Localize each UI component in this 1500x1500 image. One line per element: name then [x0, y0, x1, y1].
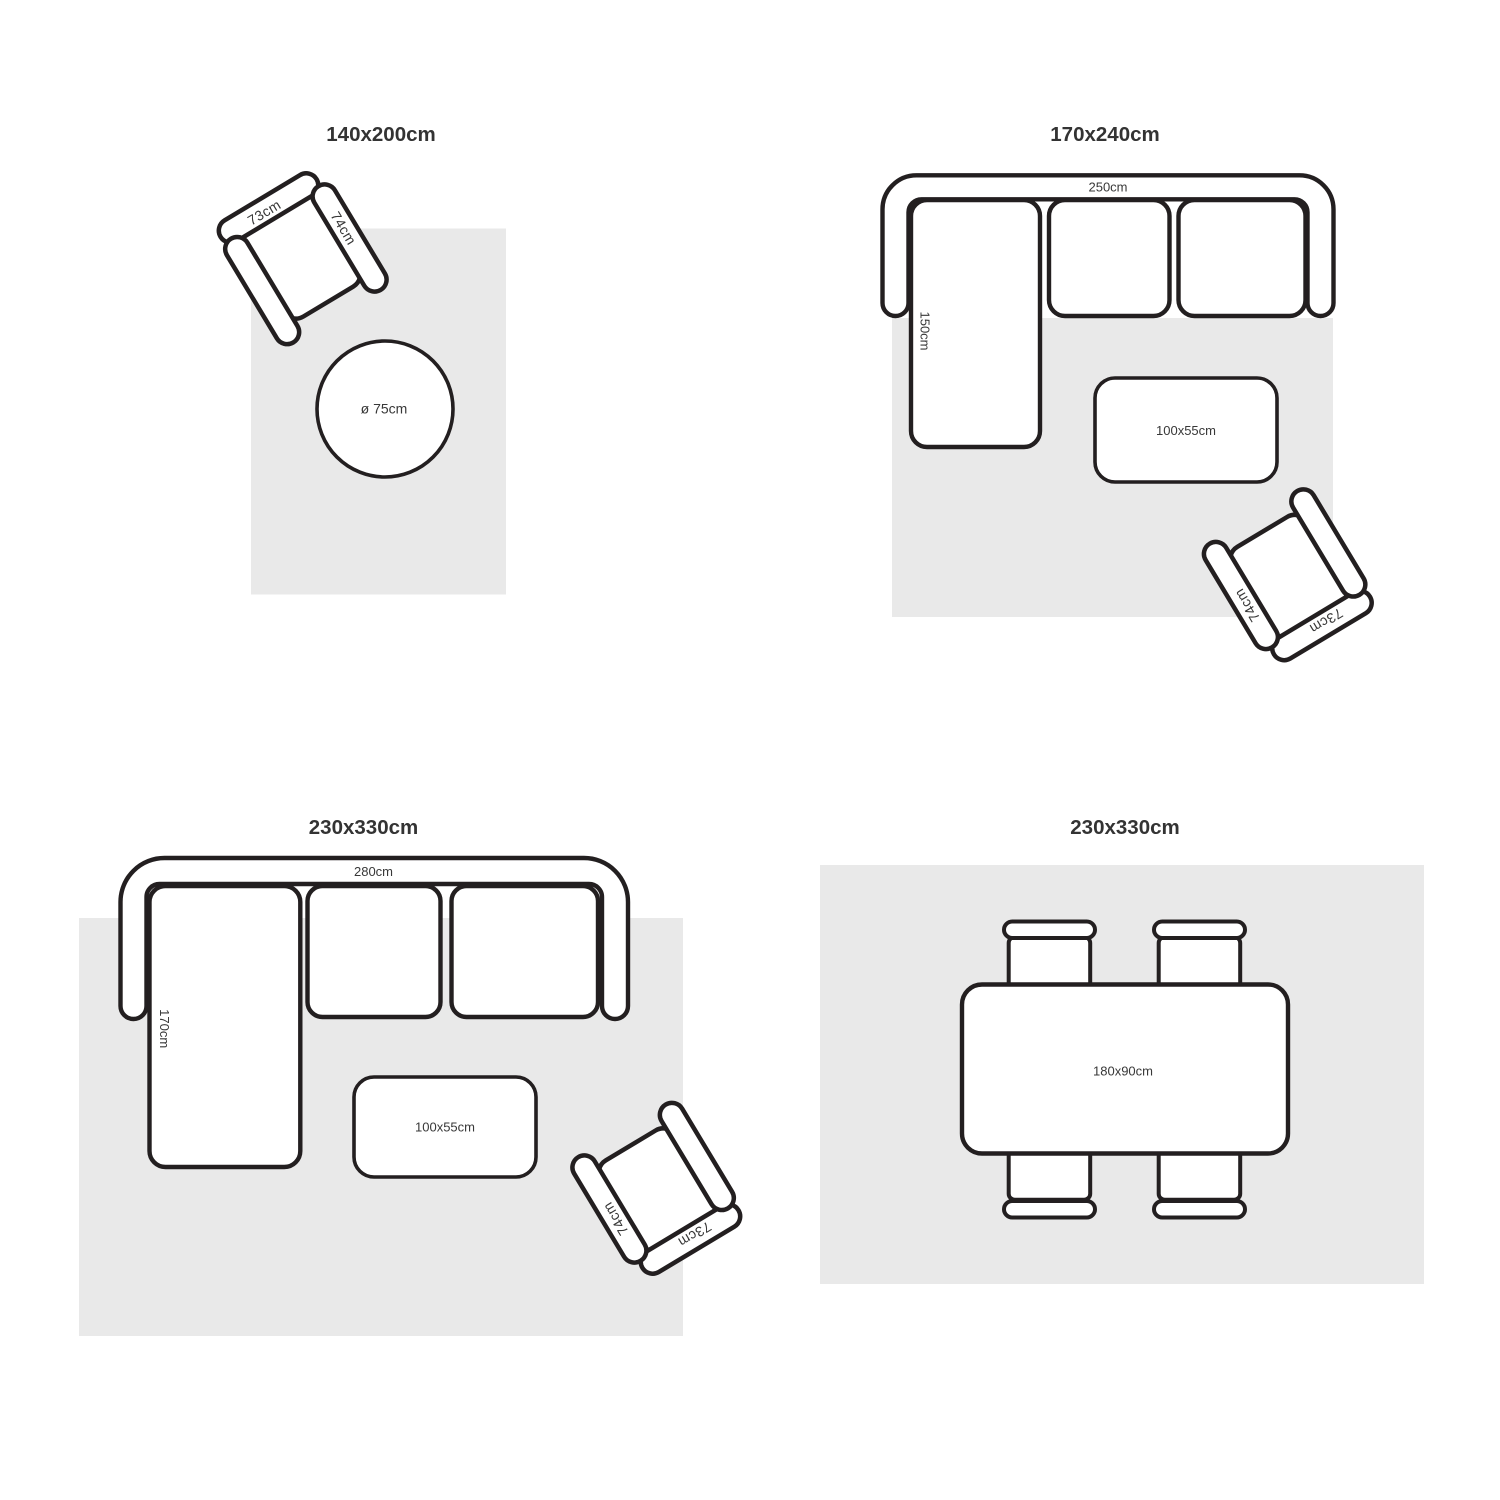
- svg-text:250cm: 250cm: [1088, 180, 1127, 195]
- svg-text:230x330cm: 230x330cm: [1070, 816, 1179, 839]
- svg-text:100x55cm: 100x55cm: [1156, 423, 1216, 438]
- svg-text:180x90cm: 180x90cm: [1093, 1064, 1153, 1079]
- svg-text:280cm: 280cm: [354, 864, 393, 879]
- svg-text:170cm: 170cm: [157, 1009, 172, 1048]
- svg-text:ø 75cm: ø 75cm: [361, 401, 408, 417]
- svg-text:230x330cm: 230x330cm: [309, 816, 418, 839]
- svg-text:170x240cm: 170x240cm: [1050, 123, 1159, 146]
- svg-text:100x55cm: 100x55cm: [415, 1120, 475, 1135]
- svg-text:150cm: 150cm: [917, 311, 932, 350]
- svg-text:140x200cm: 140x200cm: [326, 123, 435, 146]
